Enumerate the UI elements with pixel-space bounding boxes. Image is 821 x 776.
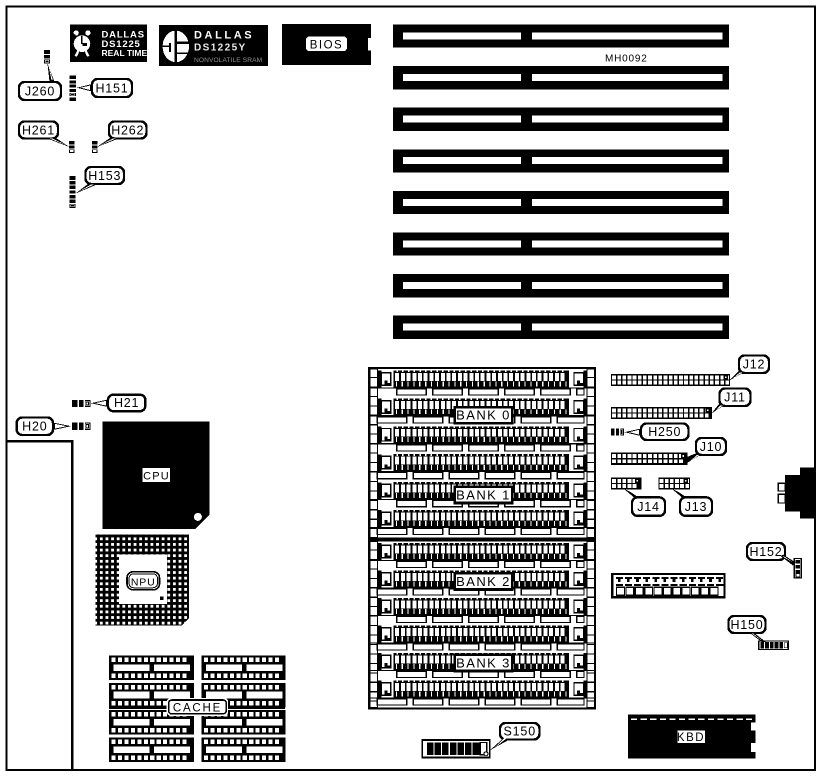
svg-text:BANK 2: BANK 2 — [456, 574, 511, 589]
svg-text:DALLAS: DALLAS — [194, 30, 254, 42]
svg-text:J12: J12 — [743, 358, 766, 372]
svg-text:NPU: NPU — [131, 577, 156, 589]
svg-text:BANK 1: BANK 1 — [456, 487, 511, 502]
svg-text:NONVOLATILE SRAM: NONVOLATILE SRAM — [194, 57, 262, 64]
svg-text:J13: J13 — [685, 500, 708, 514]
svg-text:H153: H153 — [88, 169, 121, 183]
svg-text:H261: H261 — [22, 123, 55, 137]
svg-text:DS1225Y: DS1225Y — [194, 43, 247, 54]
svg-text:H250: H250 — [648, 425, 681, 439]
svg-text:BANK 0: BANK 0 — [456, 408, 511, 423]
svg-text:J260: J260 — [25, 84, 55, 98]
svg-text:BANK 3: BANK 3 — [456, 655, 511, 670]
svg-text:H150: H150 — [730, 618, 763, 632]
svg-text:H151: H151 — [95, 81, 128, 95]
svg-text:H20: H20 — [22, 420, 47, 434]
svg-text:REAL TIME: REAL TIME — [102, 48, 148, 58]
svg-text:H152: H152 — [749, 545, 782, 559]
svg-text:H262: H262 — [111, 123, 144, 137]
svg-text:J11: J11 — [724, 391, 746, 405]
svg-text:KBD: KBD — [677, 732, 705, 744]
svg-text:H21: H21 — [114, 396, 139, 410]
svg-text:J10: J10 — [700, 440, 723, 454]
svg-text:S150: S150 — [504, 725, 536, 739]
svg-text:MH0092: MH0092 — [605, 54, 648, 65]
svg-text:CACHE: CACHE — [173, 702, 222, 714]
svg-text:CPU: CPU — [143, 471, 170, 483]
svg-text:J14: J14 — [637, 500, 660, 514]
svg-text:BIOS: BIOS — [310, 39, 343, 51]
